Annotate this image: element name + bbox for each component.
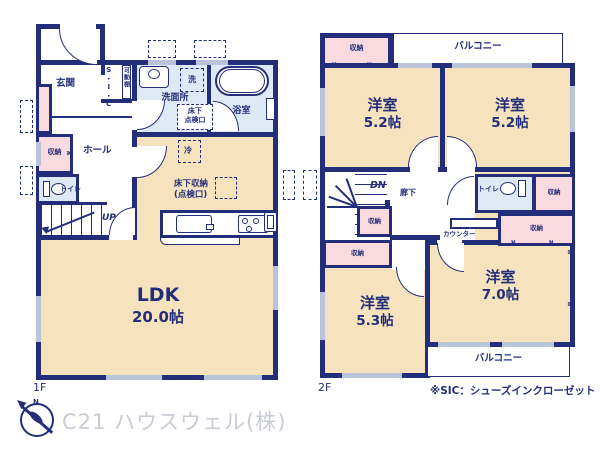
window-segment bbox=[36, 296, 41, 342]
bathtub-inner bbox=[219, 69, 265, 93]
window-segment bbox=[502, 342, 554, 347]
room-label-bedroom-70: 洋室 7.0帖 bbox=[448, 268, 553, 304]
room-label-toilet-1f: トイレ bbox=[60, 185, 81, 194]
room-label-bedroom-52-right: 洋室 5.2帖 bbox=[455, 96, 565, 132]
balcony-top-label: バルコニー bbox=[393, 41, 563, 53]
label-western-room: 洋室 bbox=[455, 96, 565, 115]
window-segment bbox=[148, 60, 176, 65]
ac-unit-outline bbox=[303, 170, 317, 200]
window-segment bbox=[570, 86, 575, 132]
window-segment bbox=[196, 60, 228, 65]
corridor-branch bbox=[392, 240, 425, 270]
wall-segment bbox=[135, 132, 273, 137]
compass-north-label: N bbox=[33, 398, 39, 407]
floor-label-1f: 1F bbox=[33, 381, 46, 395]
label-ldk-name: LDK bbox=[98, 284, 218, 308]
ac-unit-outline bbox=[20, 100, 33, 133]
entrance-step-line bbox=[41, 116, 133, 118]
door-opening bbox=[109, 235, 133, 240]
closet-strip-entrance bbox=[36, 84, 52, 134]
toilet-tank-icon bbox=[518, 180, 526, 197]
door-opening bbox=[410, 167, 438, 172]
label-size-52: 5.2帖 bbox=[455, 115, 565, 132]
room-label-hall: ホール bbox=[83, 145, 112, 157]
label-ldk-size: 20.0帖 bbox=[98, 308, 218, 327]
room-label-movable-shelf: 可動棚 bbox=[122, 67, 130, 88]
closet-mark: ∨ bbox=[331, 61, 338, 69]
room-label-washroom: 洗面所 bbox=[139, 93, 211, 104]
shutter-mark: ∨ bbox=[566, 249, 574, 256]
room-label-toilet-2f: トイレ bbox=[478, 185, 499, 194]
room-label-storage-2f-mid: 収納 bbox=[359, 217, 390, 225]
label-underfloor-storage-l2: (点検口) bbox=[174, 190, 207, 200]
company-watermark: C21 ハウスウェル(株) bbox=[62, 406, 286, 436]
underfloor-storage-outline bbox=[215, 177, 237, 199]
ac-unit-outline bbox=[20, 166, 33, 195]
room-label-storage-2f-a: 収納 bbox=[536, 188, 572, 196]
washroom-basin-icon bbox=[148, 69, 160, 79]
label-fridge: 冷 bbox=[184, 146, 192, 156]
closet-mark: ∨ bbox=[510, 239, 517, 247]
counter-2f bbox=[450, 218, 498, 229]
closet-mark: ∨ bbox=[366, 61, 373, 69]
label-western-room: 洋室 bbox=[448, 268, 553, 287]
closet-mark: ∨ bbox=[65, 150, 73, 157]
room-label-bedroom-52-left: 洋室 5.2帖 bbox=[330, 96, 435, 132]
window-segment bbox=[273, 266, 278, 310]
label-washer: 洗 bbox=[188, 75, 196, 85]
door-opening bbox=[447, 167, 475, 172]
room-label-entrance: 玄関 bbox=[56, 78, 75, 90]
vent-outline bbox=[148, 40, 176, 58]
room-label-storage-2f-lower: 収納 bbox=[325, 249, 390, 257]
window-segment bbox=[438, 342, 490, 347]
label-dn: DN bbox=[370, 180, 386, 192]
label-western-room: 洋室 bbox=[330, 96, 435, 115]
room-label-storage-2f-b: 収納 bbox=[500, 224, 573, 232]
ac-unit-outline bbox=[283, 170, 295, 200]
vent-outline bbox=[194, 40, 226, 58]
room-label-sic: S・I・C bbox=[104, 66, 113, 109]
label-size-52: 5.2帖 bbox=[330, 115, 435, 132]
window-segment bbox=[452, 63, 532, 68]
kitchen-counter-lip bbox=[160, 238, 240, 245]
label-underfloor-access: 床下 点検口 bbox=[178, 107, 212, 125]
label-up: UP bbox=[102, 213, 116, 224]
wall-segment bbox=[440, 68, 445, 167]
label-counter: カウンター bbox=[443, 230, 476, 238]
toilet-tank-icon bbox=[43, 181, 50, 197]
shutter-mark: ∨ bbox=[566, 301, 574, 308]
label-underfloor-storage: 床下収納 (点検口) bbox=[174, 179, 208, 200]
room-label-bathroom: 浴室 bbox=[210, 106, 273, 117]
floor-label-2f: 2F bbox=[318, 381, 331, 395]
burner-icon bbox=[253, 218, 259, 224]
room-label-storage-2f-top: 収納 bbox=[326, 44, 387, 53]
label-corridor: 廊下 bbox=[400, 188, 416, 198]
window-segment bbox=[204, 375, 262, 380]
toilet-bowl-icon bbox=[500, 182, 516, 195]
closet-mark: ∨ bbox=[548, 239, 555, 247]
label-underfloor-storage-l1: 床下収納 bbox=[174, 179, 208, 189]
label-size-70: 7.0帖 bbox=[448, 287, 553, 304]
window-segment bbox=[398, 63, 432, 68]
label-underfloor-access-l2: 点検口 bbox=[185, 116, 206, 124]
label-western-room: 洋室 bbox=[325, 294, 425, 313]
room-label-bedroom-53: 洋室 5.3帖 bbox=[325, 294, 425, 330]
sic-note: ※SIC：シューズインクローゼット bbox=[430, 385, 595, 398]
ac-unit-inner bbox=[267, 215, 274, 229]
label-underfloor-access-l1: 床下 bbox=[188, 107, 202, 115]
kitchen-faucet-icon bbox=[206, 224, 214, 230]
window-segment bbox=[320, 88, 325, 136]
balcony-bottom-label: バルコニー bbox=[427, 353, 570, 365]
window-segment bbox=[106, 375, 162, 380]
burner-icon bbox=[242, 218, 248, 224]
window-segment bbox=[342, 373, 402, 378]
room-label-ldk: LDK 20.0帖 bbox=[98, 284, 218, 327]
burner-icon bbox=[246, 226, 252, 232]
label-size-53: 5.3帖 bbox=[325, 313, 425, 330]
stairs-winder-line bbox=[327, 206, 357, 208]
